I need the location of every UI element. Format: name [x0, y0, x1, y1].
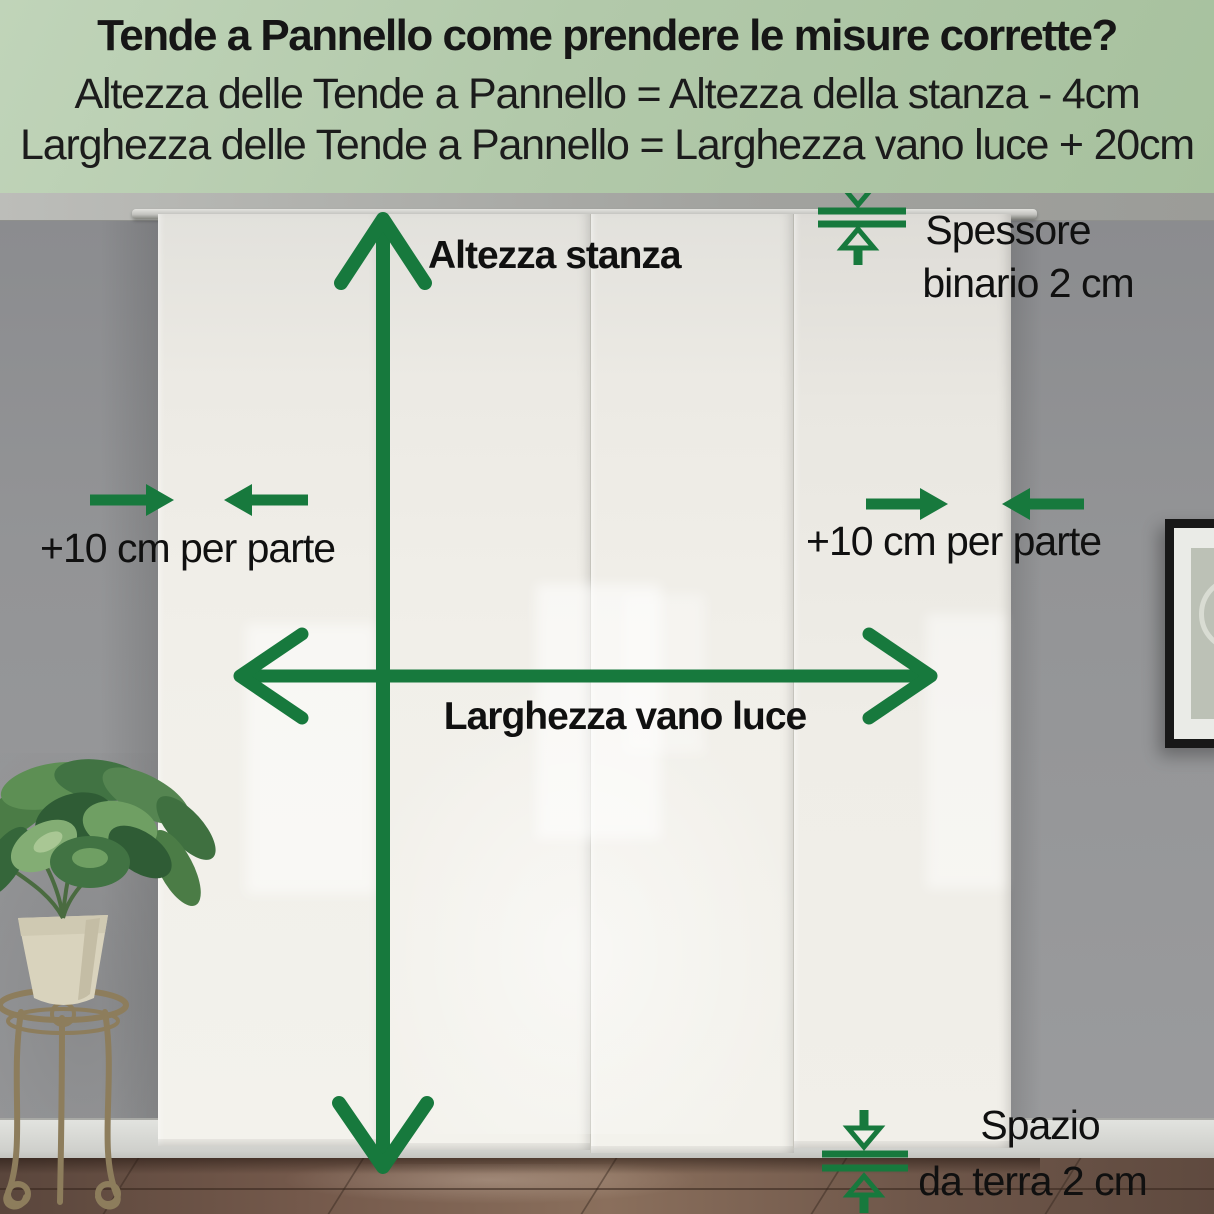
room-scene: Altezza stanza Larghezza vano luce +10 c…	[0, 193, 1214, 1214]
width-formula: Larghezza delle Tende a Pannello = Largh…	[20, 120, 1194, 170]
picture-frame	[1165, 519, 1214, 748]
height-formula: Altezza delle Tende a Pannello = Altezza…	[74, 69, 1139, 119]
floor-gap-label-line1: Spazio	[960, 1105, 1120, 1146]
frame-mat	[1174, 528, 1214, 739]
artwork-circle	[1199, 576, 1214, 652]
header-banner: Tende a Pannello come prendere le misure…	[0, 0, 1214, 193]
infographic-canvas: Tende a Pannello come prendere le misure…	[0, 0, 1214, 1214]
rail-thickness-label-line1: Spessore	[918, 210, 1098, 251]
page-title: Tende a Pannello come prendere le misure…	[97, 12, 1117, 60]
plant-leaves	[0, 754, 220, 913]
window-reflection	[926, 614, 1004, 889]
frame-artwork	[1191, 548, 1214, 719]
floor-gap-label-line2: da terra 2 cm	[905, 1161, 1160, 1202]
rail-thickness-label-line2: binario 2 cm	[888, 263, 1168, 304]
opening-width-label: Larghezza vano luce	[425, 697, 825, 736]
window-reflection	[246, 624, 376, 894]
right-overlap-label: +10 cm per parte	[806, 521, 1101, 562]
potted-plant	[0, 750, 220, 1214]
left-overlap-label: +10 cm per parte	[40, 528, 335, 569]
room-height-label: Altezza stanza	[428, 236, 681, 275]
panel-curtain	[158, 214, 1010, 1156]
plant-stand	[0, 990, 126, 1206]
